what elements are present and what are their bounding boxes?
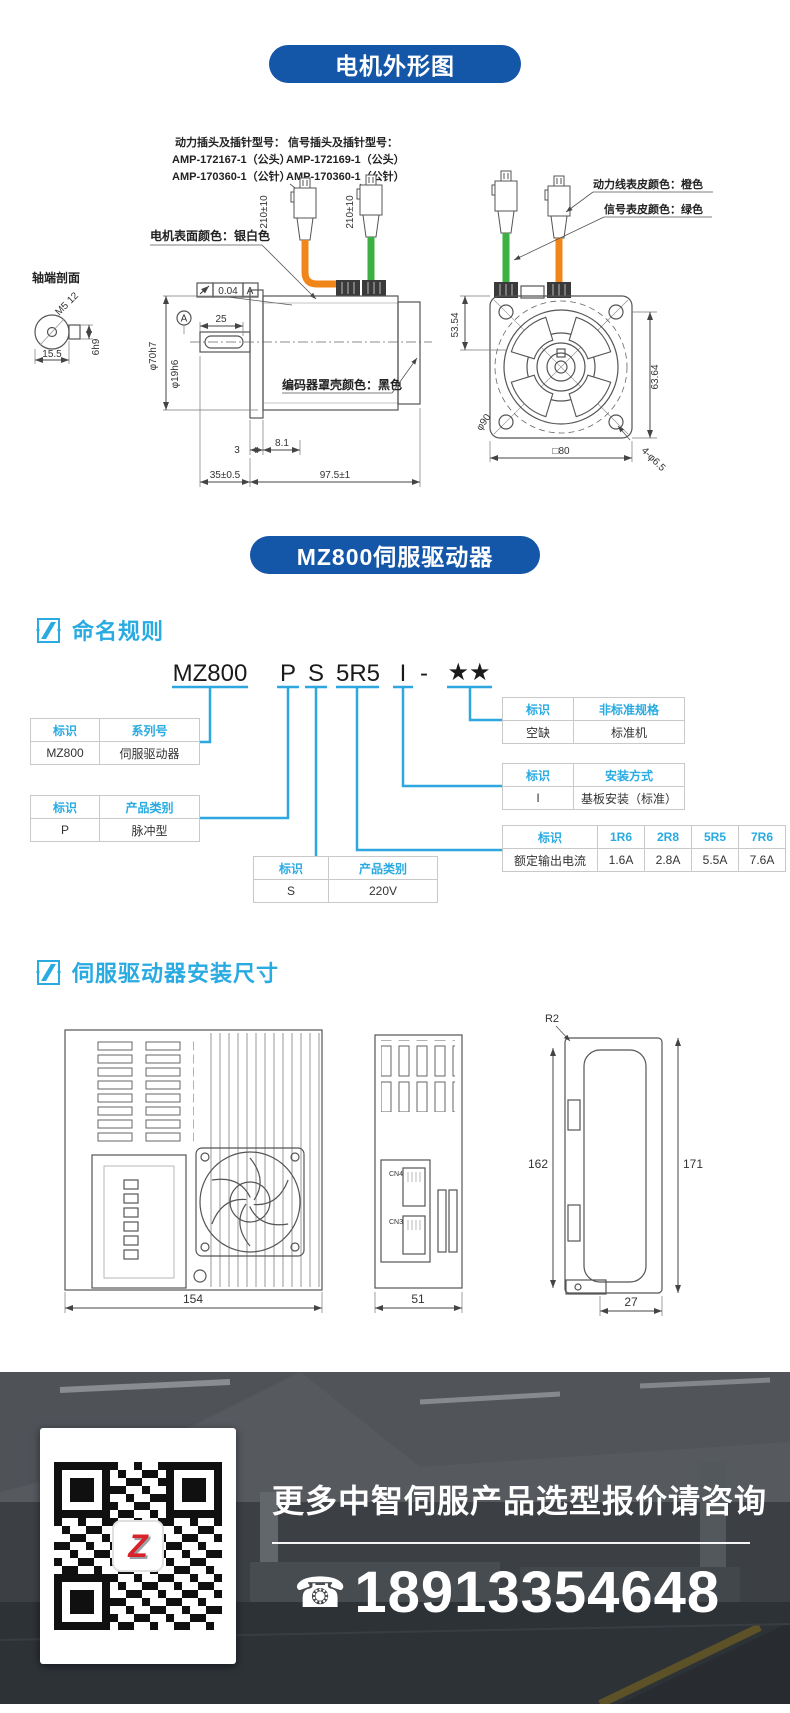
power-plug-front <box>545 176 570 238</box>
driver-profile-view: R2 162 171 27 <box>528 1013 703 1316</box>
dim-shaft-len: 35±0.5 <box>210 470 241 481</box>
footer-headline: 更多中智伺服产品选型报价请咨询 <box>272 1476 762 1522</box>
datum-a: A <box>181 314 188 325</box>
qr-card: Z <box>40 1428 236 1664</box>
port-cn4-label: CN4 <box>389 1171 403 1178</box>
dim-height-171: 171 <box>683 1157 703 1171</box>
dim-front1: 3 <box>234 445 240 456</box>
qr-center-logo: Z <box>112 1520 164 1572</box>
signal-plug-head: AMP-172169-1（公头） <box>286 152 405 166</box>
dim-flange-v1: 53.54 <box>450 312 461 337</box>
code-series: MZ800 <box>172 660 248 688</box>
page: 电机外形图 动力插头及插针型号： AMP-1721 <box>0 0 790 1713</box>
banner-motor-outline: 电机外形图 <box>269 45 521 83</box>
shaft-section-view: 轴端剖面 M5 12 15.5 6h9 <box>32 270 102 364</box>
driver-front-view: 154 <box>65 1030 322 1313</box>
dim-shaft-ext: 25 <box>215 314 227 325</box>
phone-number: 18913354648 <box>354 1564 720 1622</box>
motor-front-view: 动力线表皮颜色：橙色 信号表皮颜色：绿色 <box>450 171 713 474</box>
code-current: 5R5 <box>336 660 379 688</box>
motor-side-view: 210±10 210±10 电机表面颜色：银白色 0.04 A A <box>148 175 432 487</box>
zhongzhi-logo-icon <box>35 959 62 986</box>
encoder-color-label: 编码器罩壳颜色：黑色 <box>281 377 402 392</box>
dim-height-162: 162 <box>528 1157 548 1171</box>
port-cn3-label: CN3 <box>389 1219 403 1226</box>
signal-cable-color-label: 信号表皮颜色：绿色 <box>604 202 703 216</box>
footer-contact-banner: Z 更多中智伺服产品选型报价请咨询 ☎ 18913354648 <box>0 1372 790 1704</box>
table-voltage-class: 标识 产品类别 S 220V <box>253 856 438 903</box>
dim-driver-thickness: 27 <box>624 1295 638 1309</box>
table-product-type: 标识 产品类别 P 脉冲型 <box>30 795 200 842</box>
install-title: 伺服驱动器安装尺寸 <box>72 956 279 988</box>
dim-cable-length-power: 210±10 <box>259 195 270 229</box>
dim-key: 6h9 <box>91 338 102 355</box>
dim-body-len: 97.5±1 <box>320 470 351 481</box>
dim-holes: 4-φ6.5 <box>639 445 668 474</box>
install-section-header: 伺服驱动器安装尺寸 <box>35 956 279 988</box>
power-cable-color-label: 动力线表皮颜色：橙色 <box>593 177 703 191</box>
dim-pilot: φ90 <box>474 412 493 433</box>
code-mount: I <box>393 660 413 688</box>
dim-driver-width: 154 <box>183 1292 203 1306</box>
dim-tap: M5 12 <box>54 290 82 318</box>
driver-install-drawing: 154 CN4 CN3 51 <box>0 1000 790 1330</box>
dim-flange-v2: 63.64 <box>650 364 661 389</box>
footer-divider <box>272 1542 750 1544</box>
runout-tolerance-frame: 0.04 A <box>197 283 292 305</box>
banner-motor-outline-label: 电机外形图 <box>335 47 455 81</box>
power-plug-pin: AMP-170360-1（公针） <box>172 169 291 183</box>
code-nonstandard: ★★ <box>445 658 493 687</box>
dim-driver-depth: 51 <box>411 1292 425 1306</box>
banner-driver-label: MZ800伺服驱动器 <box>297 538 494 572</box>
banner-driver: MZ800伺服驱动器 <box>250 536 540 574</box>
runout-value: 0.04 <box>218 286 238 297</box>
code-type: P <box>277 660 299 688</box>
power-plug-head: AMP-172167-1（公头） <box>172 152 291 166</box>
code-voltage: S <box>305 660 327 688</box>
power-plug-title: 动力插头及插针型号： <box>175 135 285 149</box>
qr-logo-letter: Z <box>128 1528 148 1565</box>
dim-corner-radius: R2 <box>545 1013 559 1025</box>
footer-phone-row: ☎ 18913354648 <box>294 1564 720 1622</box>
driver-side-view: CN4 CN3 51 <box>375 1035 462 1313</box>
table-series: 标识 系列号 MZ800 伺服驱动器 <box>30 718 200 765</box>
code-hyphen: - <box>416 660 432 688</box>
phone-icon: ☎ <box>294 1572 346 1614</box>
dim-shaft-dia: φ19h6 <box>170 359 181 388</box>
motor-outline-drawing: 动力插头及插针型号： AMP-172167-1（公头） AMP-170360-1… <box>0 100 790 500</box>
surface-color-label: 电机表面颜色：银白色 <box>150 228 270 243</box>
shaft-section-label: 轴端剖面 <box>32 270 80 285</box>
table-nonstandard: 标识 非标准规格 空缺 标准机 <box>502 697 685 744</box>
signal-plug-title: 信号插头及插针型号： <box>288 135 398 149</box>
dim-key-offset: 15.5 <box>42 349 62 360</box>
dim-body-dia: φ70h7 <box>148 341 159 370</box>
table-mounting: 标识 安装方式 I 基板安装（标准） <box>502 763 685 810</box>
power-cable-orange <box>305 240 348 284</box>
dim-square: □80 <box>552 446 570 457</box>
signal-plug-front <box>492 171 517 233</box>
table-rated-current: 标识 1R6 2R8 5R5 7R6 额定输出电流 1.6A 2.8A 5.5A… <box>502 825 786 872</box>
dim-front2: 8.1 <box>275 438 289 449</box>
dim-cable-length-signal: 210±10 <box>345 195 356 229</box>
